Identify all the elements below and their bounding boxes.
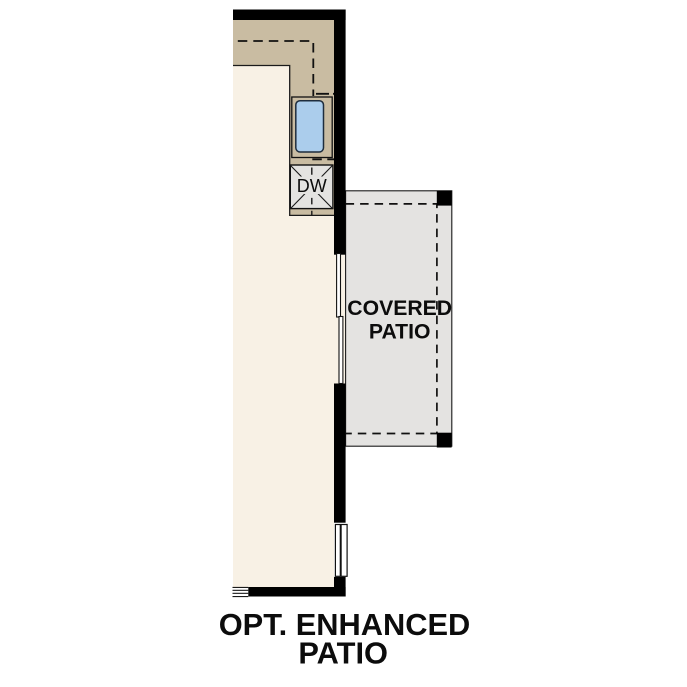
svg-text:PATIO: PATIO: [369, 321, 431, 344]
svg-text:COVERED: COVERED: [347, 297, 452, 320]
svg-text:PATIO: PATIO: [298, 635, 388, 670]
svg-text:DW: DW: [297, 176, 327, 196]
